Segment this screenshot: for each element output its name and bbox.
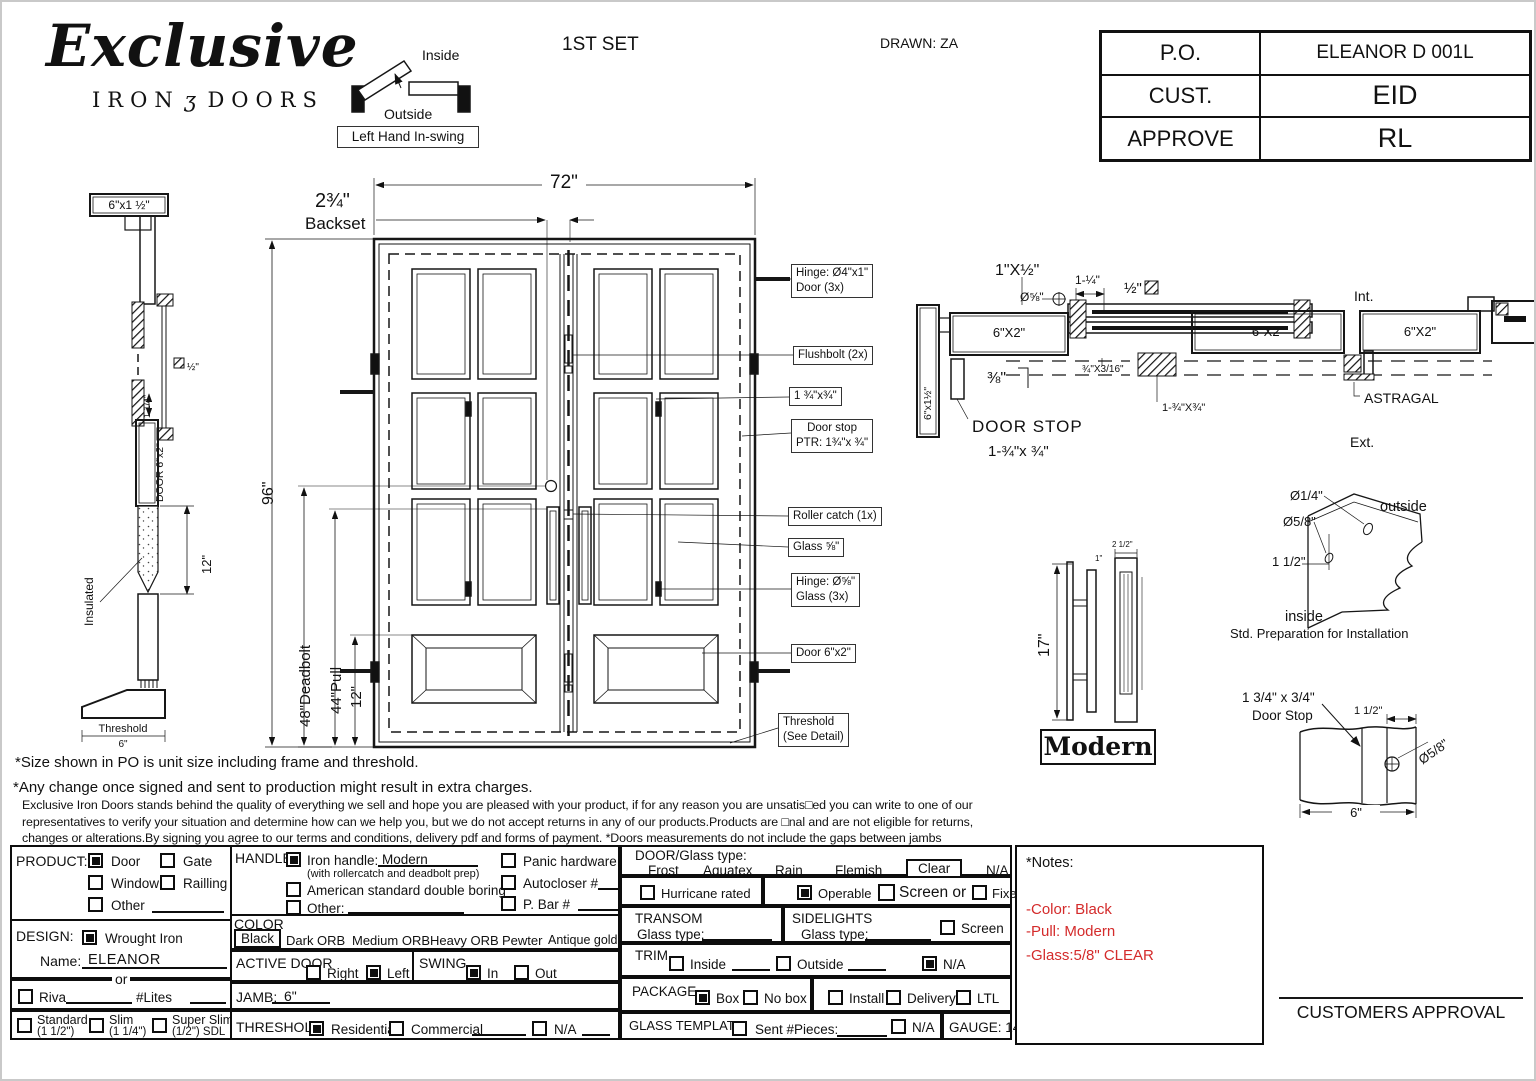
callout-hinge-glass: Hinge: Ø⅝" Glass (3x) [791,573,860,607]
product-section: PRODUCT: Door Gate Window Railling Other [10,845,232,921]
callout-flushbolt: Flushbolt (2x) [793,346,873,365]
note-color: -Color: Black [1026,901,1112,918]
checkbox-screen[interactable] [878,884,895,901]
backset-num-label: 2¾" [315,190,350,213]
checkbox-riva[interactable] [18,989,33,1004]
checkbox-trim-inside[interactable] [669,956,684,971]
profile-threshold-label: Threshold [88,723,158,735]
note-pull: -Pull: Modern [1026,923,1115,940]
install-d112: 1 1/2" [1272,554,1306,569]
checkbox-active-right[interactable] [306,965,321,980]
doorstop-detail-shape [1300,704,1428,818]
glass-type-title: DOOR/Glass type: [635,848,747,863]
profile-dim-6: 6" [88,739,158,750]
install-d58: Ø5/8" [1283,514,1316,529]
checkbox-active-left[interactable] [366,965,381,980]
checkbox-swing-out[interactable] [514,965,529,980]
product-other-blank[interactable] [152,911,224,913]
side-profile-shape [82,194,194,742]
brand-ornament-icon: ʒ [184,88,203,112]
brand-logo-sub: IRON ʒ DOORS [92,88,324,112]
section-half: ½" [1124,280,1142,297]
gauge-value: GAUGE: 14 [949,1020,1020,1035]
profile-half-dim: ½" [187,362,199,373]
jamb-blank[interactable] [272,1002,330,1004]
checkbox-delivery[interactable] [886,990,901,1005]
checkbox-door[interactable] [88,853,103,868]
checkbox-nobox[interactable] [743,990,758,1005]
approve-value: RL [1260,117,1530,160]
transom-title: TRANSOM [635,911,703,926]
checkbox-window[interactable] [88,875,103,890]
section-114: 1-¼" [1075,273,1100,287]
callout-hinge-door: Hinge: Ø4"x1" Door (3x) [791,264,873,298]
checkbox-iron-handle[interactable] [286,852,301,867]
drawn-by-label: DRAWN: ZA [880,35,958,51]
note-change: *Any change once signed and sent to prod… [13,779,533,796]
profile-gap-dim: 1 1/4" [142,395,152,418]
threshold-na-blank[interactable] [582,1034,610,1036]
install-inside: inside [1285,609,1323,625]
checkbox-trim-na[interactable] [922,956,937,971]
design-section: DESIGN: Wrought Iron Name: ELEANOR [10,919,232,979]
section-d58: Ø⅝" [1020,290,1044,304]
swing-section: SWING In Out [412,950,620,982]
sidelights-section: SIDELIGHTS Glass type: Screen [783,906,1012,943]
backset-word-label: Backset [305,214,365,234]
riva-blank[interactable] [66,1002,132,1004]
section-r2-6x2: 6"X2" [1360,324,1480,339]
handle-title: HANDLE [235,850,292,866]
checkbox-operable[interactable] [797,885,812,900]
approve-key: APPROVE [1101,117,1260,160]
hurricane-section: Hurricane rated [620,876,763,906]
install-outside: outside [1380,499,1427,515]
section-doorstop-dim: 1-¾"x ¾" [988,443,1049,460]
dim-height-label: 96" [260,482,278,505]
jamb-section: JAMB: 6" [230,982,620,1010]
design-name-value: ELEANOR [88,952,161,968]
checkbox-fixed[interactable] [972,885,987,900]
dim-pull-label: 44"Pull [328,667,345,714]
handle-section: HANDLE Iron handle: Modern (with rollerc… [230,845,620,916]
checkbox-american-boring[interactable] [286,882,301,897]
design-title: DESIGN: [16,928,74,944]
checkbox-slim[interactable] [89,1018,104,1033]
po-table: P.O. ELEANOR D 001L CUST. EID APPROVE RL [1099,30,1532,162]
section-1xhalf: 1"X½" [995,262,1039,280]
dim-12-label: 12" [348,686,365,708]
trim-section: TRIM Inside Outside N/A [620,943,1012,977]
spec-sheet: Exclusive IRON ʒ DOORS Inside Outside Le… [0,0,1536,1081]
elevation-shape [298,178,793,747]
handle-dim-17: 17" [1036,634,1054,657]
commercial-blank[interactable] [472,1034,526,1036]
profile-top-jamb-label: 6"x1 ½" [92,198,166,212]
customers-approval-label: CUSTOMERS APPROVAL [1279,1002,1523,1023]
note-paragraph: Exclusive Iron Doors stands behind the q… [22,797,987,847]
po-value: ELEANOR D 001L [1260,32,1530,75]
note-glass: -Glass:5/8" CLEAR [1026,947,1154,964]
checkbox-swing-in[interactable] [466,965,481,980]
callout-threshold: Threshold (See Detail) [778,713,849,747]
dim-width-label: 72" [550,172,578,194]
jamb-value: 6" [284,988,297,1004]
section-astragal: ASTRAGAL [1364,390,1439,406]
transom-glass-blank[interactable] [702,939,772,941]
swing-outside-label: Outside [384,106,432,122]
package-section: PACKAGE Box No box [620,977,812,1012]
checkbox-gate[interactable] [160,853,175,868]
swing-direction-badge: Left Hand In-swing [337,126,479,148]
color-section: COLOR Black Dark ORB Medium ORB Heavy OR… [230,914,620,950]
brand-iron: IRON [92,88,180,112]
stopdetail-size: 1 3/4" x 3/4" [1242,690,1315,705]
swing-diagram-shape [352,61,470,112]
sidelights-glass-blank[interactable] [865,939,931,941]
color-selected-badge[interactable]: Black [234,929,281,948]
checkbox-trim-outside[interactable] [776,956,791,971]
checkbox-gt-na[interactable] [891,1019,906,1034]
checkbox-sidelights-screen[interactable] [940,920,955,935]
checkbox-hurricane[interactable] [640,885,655,900]
cust-key: CUST. [1101,75,1260,118]
notes-box-title: *Notes: [1026,855,1074,871]
checkbox-install[interactable] [828,990,843,1005]
or-label: or [112,971,130,987]
profile-dim-12: 12" [199,555,214,574]
note-size: *Size shown in PO is unit size including… [15,754,419,771]
section-38: ⅜" [987,370,1006,388]
callout-muntin: 1 ¾"x¾" [789,387,842,406]
swing-inside-label: Inside [422,47,459,63]
checkbox-commercial[interactable] [389,1021,404,1036]
checkbox-product-other[interactable] [88,897,103,912]
handle-dim-25: 2 1/2" [1112,540,1133,549]
profile-door-label: DOOR 6"x2" [154,443,166,502]
section-jamb-6x112: 6"x1½" [922,387,934,420]
section-134x34: 1-¾"X¾" [1162,402,1205,414]
head-section-shape [917,277,1536,437]
callout-doorstop: Door stop PTR: 1¾"x ¾" [791,419,873,453]
handle-name-badge: Modern [1040,729,1156,765]
checkbox-threshold-na[interactable] [532,1021,547,1036]
callout-glass: Glass ⅝" [788,538,844,557]
pbar-blank[interactable] [578,909,618,911]
design-name-label: Name: [40,953,81,969]
trim-title: TRIM [635,948,668,963]
brand-logo-script: Exclusive [46,12,359,80]
checkbox-ltl[interactable] [956,990,971,1005]
section-r1-6x2: 6"X2" [1192,324,1344,339]
shipping-section: Install Delivery LTL [812,977,1012,1012]
callout-door-6x2: Door 6"x2" [791,644,856,663]
section-int: Int. [1354,288,1373,304]
sidelights-title: SIDELIGHTS [792,911,872,926]
transom-section: TRANSOM Glass type: [620,906,783,943]
frame-style-section: Standard (1 1/2") Slim (1 1/4") Super Sl… [10,1010,232,1040]
swing-title: SWING [419,955,466,971]
checkbox-pbar[interactable] [501,896,516,911]
stopdetail-name: Door Stop [1252,708,1313,723]
stopdetail-d6: 6" [1332,805,1380,820]
po-key: P.O. [1101,32,1260,75]
checkbox-super-slim[interactable] [152,1018,167,1033]
glass-template-section: GLASS TEMPLATE Sent #Pieces: N/A [620,1012,942,1040]
riva-section: or Riva #Lites [10,979,232,1010]
glass-template-title: GLASS TEMPLATE [629,1018,743,1033]
package-title: PACKAGE [632,984,696,999]
glass-type-section: DOOR/Glass type: Frost Aquatex Rain Flem… [620,845,1012,876]
checkbox-autocloser[interactable] [501,875,516,890]
product-title: PRODUCT: [16,853,88,869]
section-ext: Ext. [1350,434,1374,450]
sent-pieces-blank[interactable] [837,1035,887,1037]
dim-deadbolt-label: 48"Deadbolt [297,645,314,727]
checkbox-panic-hardware[interactable] [501,853,516,868]
operable-section: Operable Screen or Fixed [763,876,1012,906]
handle-dim-1: 1" [1095,554,1102,563]
profile-insulated-label: Insulated [82,577,96,626]
install-d14: Ø1/4" [1290,488,1323,503]
install-caption: Std. Preparation for Installation [1230,626,1409,641]
set-label: 1ST SET [562,34,639,56]
lites-blank[interactable] [190,1002,226,1004]
autocloser-blank[interactable] [598,888,618,890]
handle-shape [1052,549,1142,722]
notes-box: *Notes: -Color: Black -Pull: Modern -Gla… [1015,845,1264,1045]
iron-handle-value: Modern [382,852,428,867]
threshold-section: THRESHOLD Residential Commercial N/A [230,1010,620,1040]
checkbox-wrought-iron[interactable] [82,930,97,945]
checkbox-box[interactable] [695,990,710,1005]
checkbox-sent-pieces[interactable] [732,1021,747,1036]
checkbox-residential[interactable] [309,1021,324,1036]
section-34x316: ¾"X3/16" [1082,364,1124,375]
gauge-section: GAUGE: 14 [942,1012,1012,1040]
brand-doors: DOORS [207,88,323,112]
checkbox-railling[interactable] [160,875,175,890]
stopdetail-d112: 1 1/2" [1354,705,1382,717]
callout-rollercatch: Roller catch (1x) [788,507,882,526]
trim-inside-blank[interactable] [732,969,770,971]
section-head-6x2: 6"X2" [950,325,1068,340]
cust-value: EID [1260,75,1530,118]
section-doorstop-title: DOOR STOP [972,417,1083,437]
checkbox-handle-other[interactable] [286,900,301,915]
trim-outside-blank[interactable] [848,969,886,971]
checkbox-standard[interactable] [17,1018,32,1033]
active-door-section: ACTIVE DOOR Right Left [230,950,414,982]
